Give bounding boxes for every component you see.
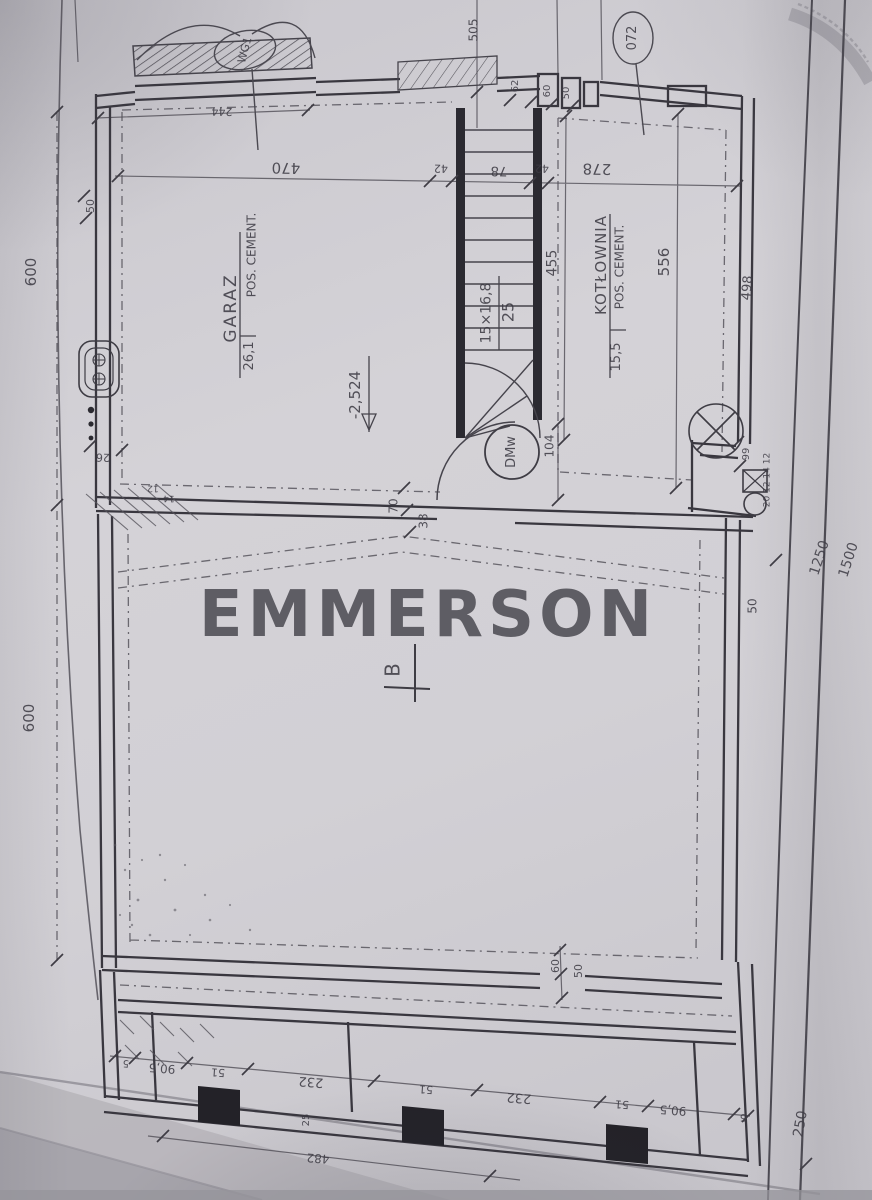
dim-455: 455 <box>546 250 561 277</box>
dim-60-mid: 60 <box>550 959 562 973</box>
stair-wall-left <box>456 108 465 438</box>
hatched-zones <box>133 38 497 90</box>
dim-42a: 42 <box>434 162 448 174</box>
corner-hatch <box>86 484 214 1066</box>
dim-42b: 42 <box>535 162 549 174</box>
room-floor-kotlownia: POS. CEMENT. <box>614 225 627 310</box>
level-marker: -2,524 <box>348 371 364 419</box>
room-label-kotlownia: KOTŁOWNIA <box>594 215 610 315</box>
stairs-width: 25 <box>501 302 518 322</box>
dim-14: 14 <box>163 492 175 502</box>
floor-plan-photo: GARAZPOS. CEMENT.26,1KOTŁOWNIAPOS. CEMEN… <box>0 0 872 1200</box>
dim-51a: 51 <box>211 1066 226 1078</box>
dim-26: 26 <box>96 451 110 463</box>
dim-470: 470 <box>272 159 301 175</box>
dim-chain-annex: 20 12 14 12 <box>763 453 772 507</box>
dim-104: 104 <box>544 435 557 458</box>
dim-244: 244 <box>211 105 232 117</box>
dim-278: 278 <box>583 160 612 176</box>
room-label-lines <box>240 214 626 378</box>
paper-speckles <box>114 844 252 937</box>
photo-bottom-shadow <box>0 1190 872 1200</box>
dim-232b: 232 <box>506 1089 532 1104</box>
dim-51c: 51 <box>615 1098 630 1110</box>
garage-gate-hatch <box>133 38 312 76</box>
dim-905a: 90,5 <box>148 1061 176 1075</box>
section-marker-b: B <box>383 663 404 677</box>
watermark-emmerson: EMMERSON <box>199 578 657 652</box>
room-floor-garaz: POS. CEMENT. <box>246 213 259 298</box>
room-area-kotlownia: 15,5 <box>610 343 624 372</box>
dim-50-left: 50 <box>85 199 97 213</box>
dim-50-mid: 50 <box>573 964 585 978</box>
dim-62: 62 <box>511 80 522 93</box>
dim-556: 556 <box>657 248 673 277</box>
dim-38: 38 <box>418 513 431 528</box>
dim-232a: 232 <box>298 1073 324 1088</box>
dim-505: 505 <box>468 19 481 42</box>
dim-600-upper: 600 <box>24 258 40 287</box>
dim-498: 498 <box>740 275 756 301</box>
dim-12: 12 <box>147 482 159 492</box>
stair-wall-right <box>533 108 542 420</box>
dim-5a: 5 <box>122 1057 129 1068</box>
room-label-garaz: GARAZ <box>223 273 241 342</box>
door-marker: DMw <box>505 436 519 468</box>
dim-70: 70 <box>388 498 401 513</box>
stamp-arc <box>790 4 870 82</box>
dim-78: 78 <box>491 163 508 177</box>
gate-swing-arcs <box>137 12 653 150</box>
dim-99: 99 <box>742 448 753 461</box>
dim-50-top: 50 <box>562 87 573 100</box>
dim-905b: 90,5 <box>659 1103 687 1117</box>
dashed-lines <box>57 102 732 1016</box>
dim-51b: 51 <box>419 1083 434 1095</box>
stairs-spec: 15×16,8 <box>480 283 495 344</box>
room-area-garaz: 26,1 <box>243 342 257 371</box>
dim-60-top: 60 <box>543 85 554 98</box>
dim-600-lower: 600 <box>22 704 38 733</box>
dim-5b: 5 <box>739 1111 746 1122</box>
dim-482: 482 <box>306 1151 330 1165</box>
wall-hatch <box>398 56 497 90</box>
window-marker: 072 <box>626 26 640 51</box>
dim-50-right: 50 <box>747 598 760 613</box>
dim-25: 25 <box>302 1114 313 1127</box>
